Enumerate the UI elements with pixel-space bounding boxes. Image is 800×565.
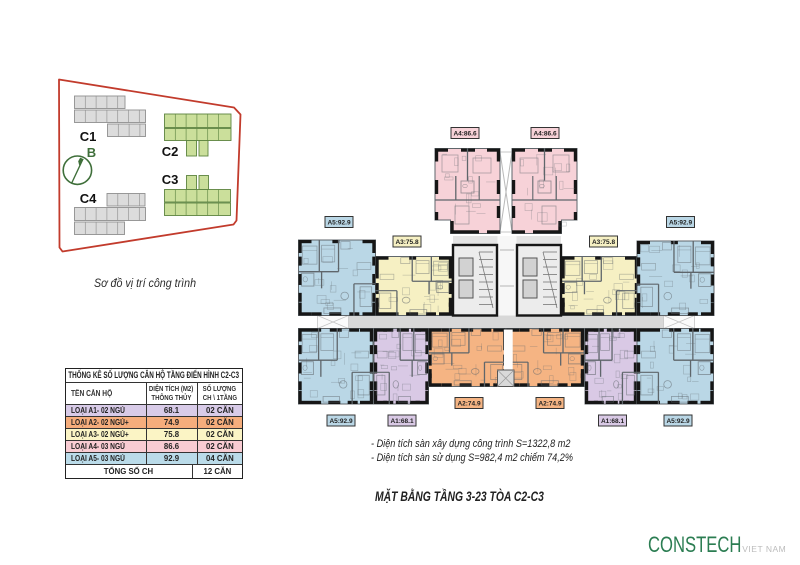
svg-text:A3:75.8: A3:75.8: [592, 239, 616, 246]
svg-text:A4:86.6: A4:86.6: [453, 131, 477, 138]
svg-text:C3: C3: [162, 172, 179, 187]
svg-text:A5:92.9: A5:92.9: [669, 220, 693, 227]
svg-text:A3:75.8: A3:75.8: [395, 239, 419, 246]
svg-text:A5:92.9: A5:92.9: [327, 220, 351, 227]
svg-text:A4:86.6: A4:86.6: [533, 131, 557, 138]
svg-text:A2:74.9: A2:74.9: [457, 401, 481, 408]
svg-text:A5:92.9: A5:92.9: [329, 418, 353, 425]
svg-text:B: B: [87, 145, 96, 160]
svg-text:A5:92.9: A5:92.9: [666, 418, 690, 425]
svg-text:C1: C1: [80, 129, 97, 144]
svg-text:C2: C2: [162, 144, 179, 159]
svg-text:A2:74.9: A2:74.9: [538, 401, 562, 408]
svg-text:A1:68.1: A1:68.1: [601, 418, 625, 425]
svg-text:A1:68.1: A1:68.1: [390, 418, 414, 425]
svg-text:C4: C4: [80, 191, 97, 206]
